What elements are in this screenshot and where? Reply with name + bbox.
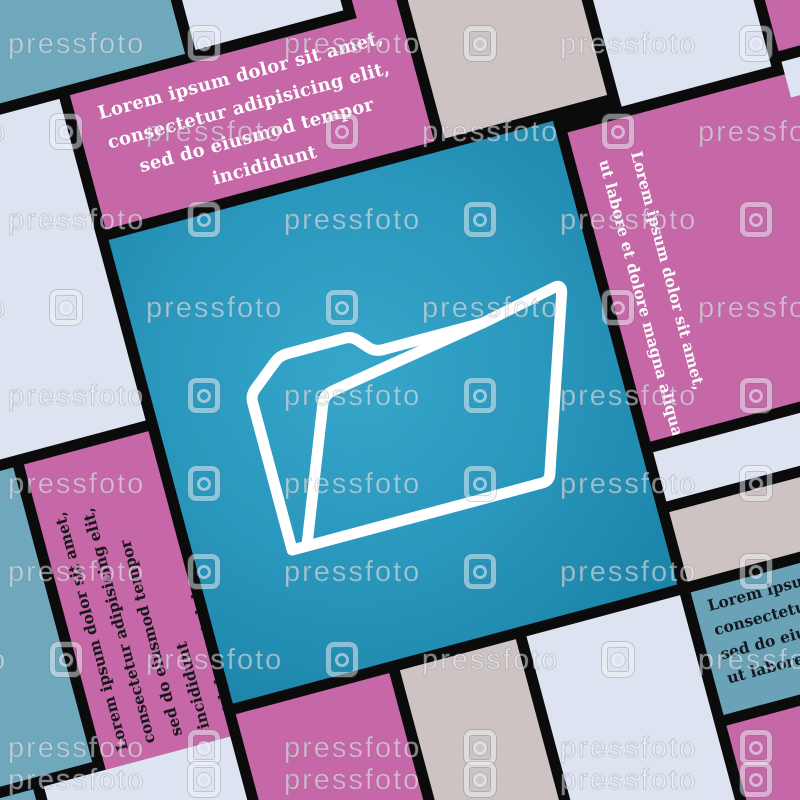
stock-image-canvas: Lorem ipsum dolor sit amet, consectetur … — [0, 0, 800, 800]
mosaic-board: Lorem ipsum dolor sit amet, consectetur … — [0, 0, 800, 800]
